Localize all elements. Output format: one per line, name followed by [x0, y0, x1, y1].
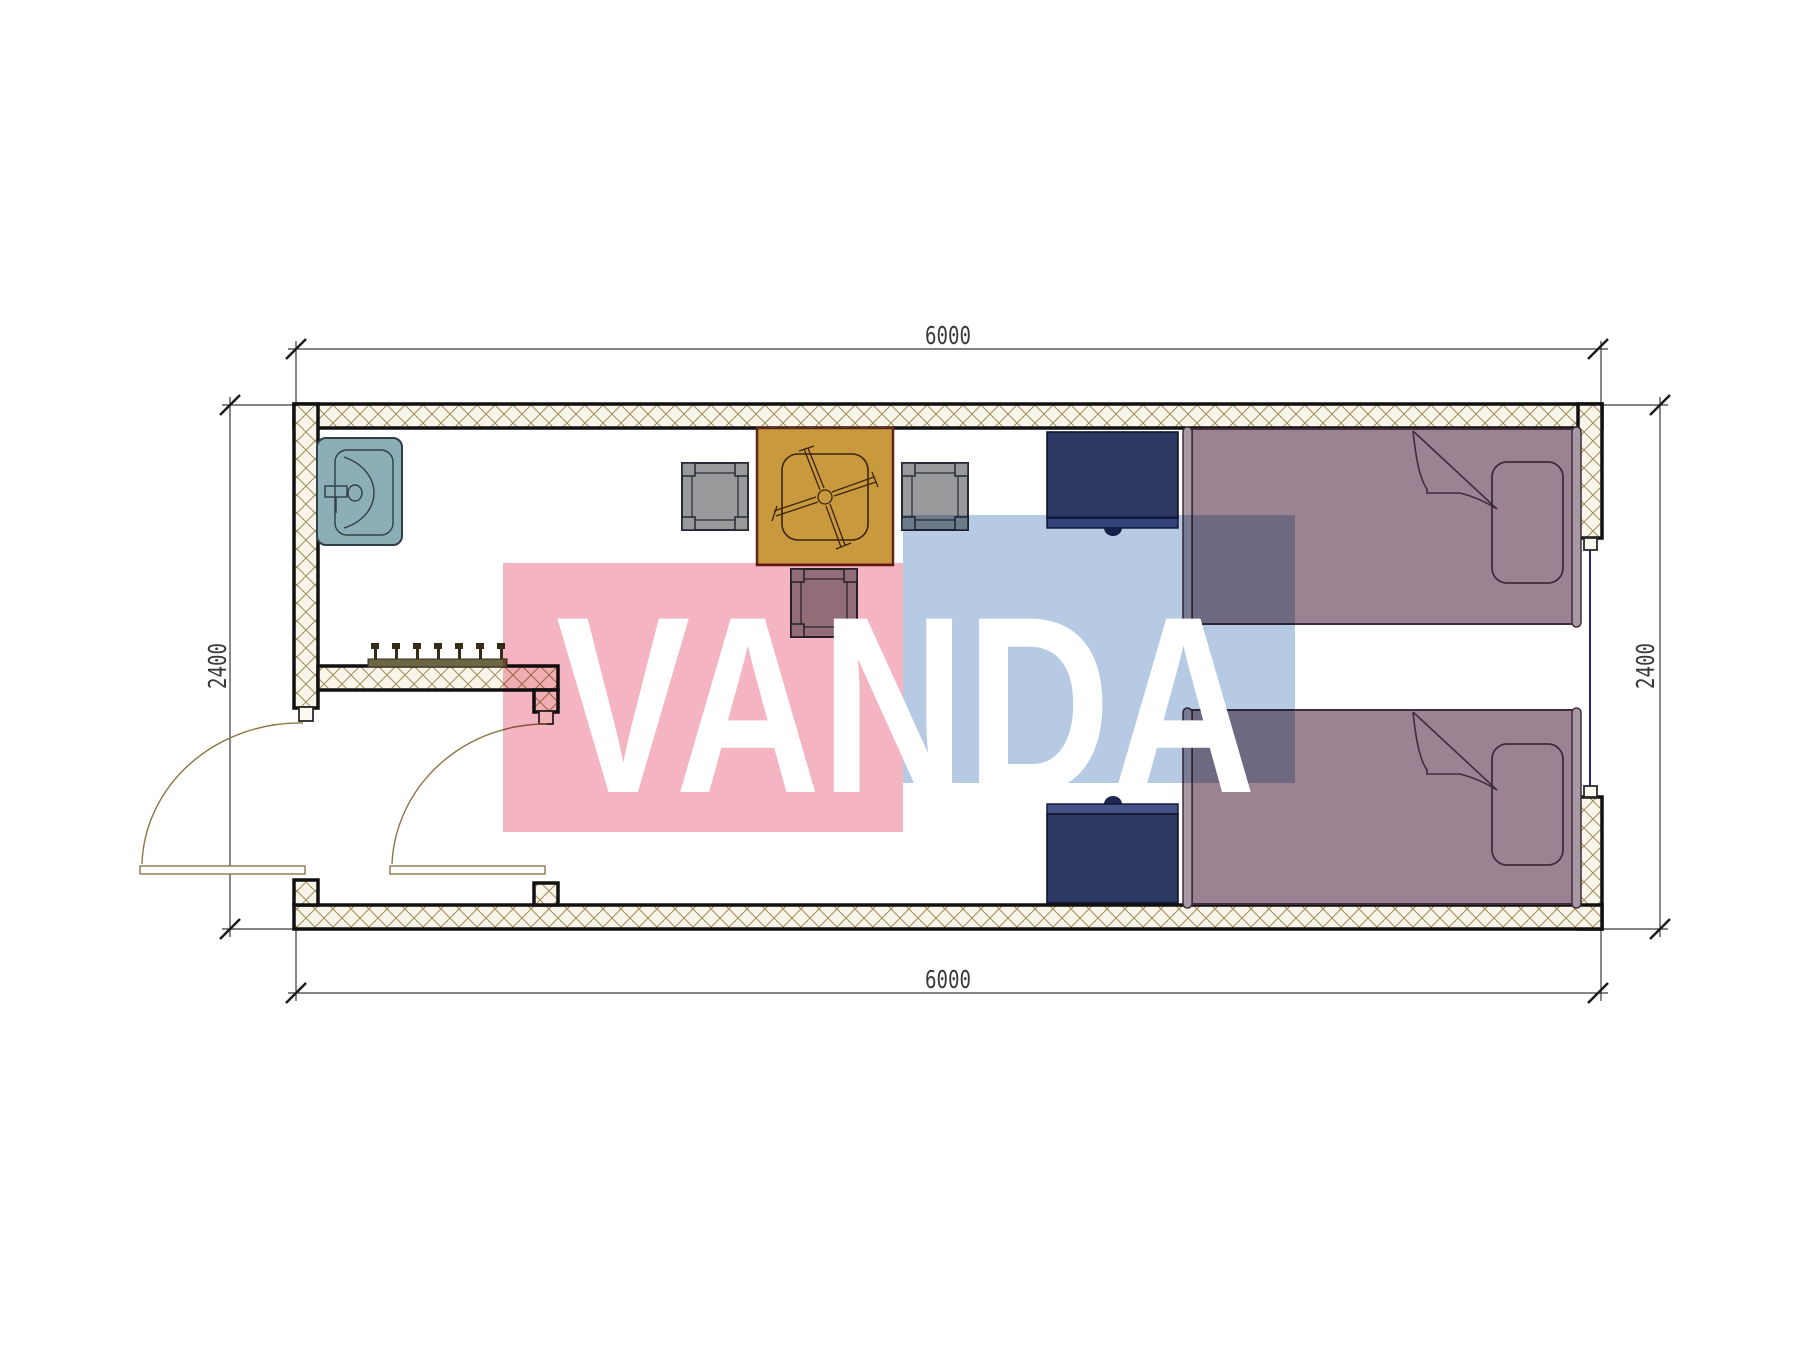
sink: [317, 438, 402, 545]
door-leaf-left: [140, 866, 305, 874]
wall-top: [294, 404, 1602, 428]
chair-left: [682, 463, 748, 530]
floor-plan-drawing: 6000 6000 2400 2400: [0, 0, 1800, 1350]
floor-plan-canvas: 6000 6000 2400 2400: [0, 0, 1800, 1350]
door-pillar-inner: [534, 883, 558, 905]
dimension-label-right: 2400: [1631, 643, 1660, 689]
jamb-left-wall: [299, 707, 313, 721]
table-top: [757, 428, 893, 565]
jamb-window-bottom: [1584, 786, 1597, 797]
wall-left: [294, 404, 318, 708]
dimension-label-top: 6000: [925, 321, 971, 350]
bed-top-footboard: [1572, 427, 1581, 627]
bed-bottom-footboard: [1572, 708, 1581, 908]
dimension-label-left: 2400: [203, 643, 232, 689]
nightstand-top-body: [1047, 432, 1178, 518]
watermark-text: VANDA: [556, 565, 1256, 846]
dimension-label-bottom: 6000: [925, 965, 971, 994]
table: [757, 428, 893, 565]
door-leaf-inner: [390, 866, 545, 874]
coat-rack-bar: [368, 659, 507, 667]
wall-bottom: [294, 905, 1602, 929]
door-pillar-left: [294, 880, 318, 905]
jamb-window-top: [1584, 538, 1597, 550]
watermark: VANDA: [503, 515, 1295, 846]
